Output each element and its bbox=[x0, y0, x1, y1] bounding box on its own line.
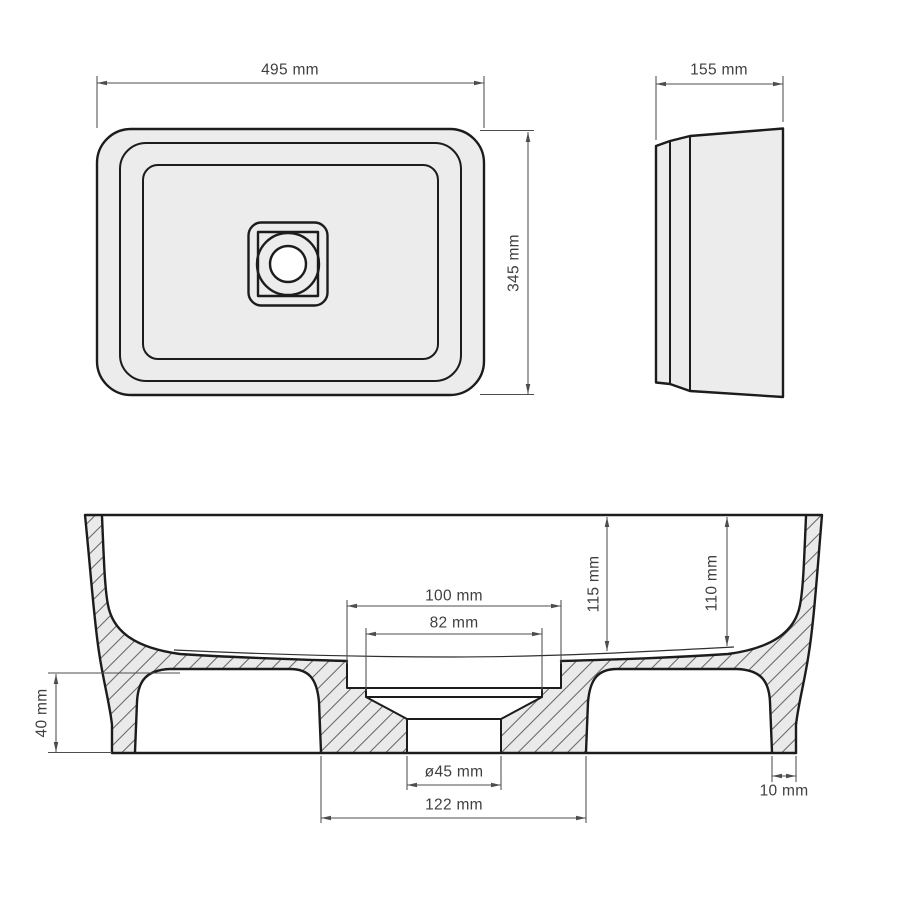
dim-label-top-depth: 345 mm bbox=[506, 234, 522, 292]
dim-label-base-height: 40 mm bbox=[34, 689, 50, 738]
dim-label-foot-thickness: 10 mm bbox=[760, 783, 809, 799]
drain-top-view bbox=[249, 223, 328, 306]
dim-label-base-width: 122 mm bbox=[425, 797, 483, 813]
dim-label-recess-outer: 100 mm bbox=[425, 588, 483, 604]
side-view bbox=[656, 129, 783, 398]
technical-drawing-page: 495 mm 345 mm 155 mm 115 mm 110 mm 100 m… bbox=[0, 0, 900, 900]
dim-label-drain-diameter: ø45 mm bbox=[425, 764, 484, 780]
dim-495 bbox=[97, 76, 484, 128]
top-view bbox=[97, 129, 484, 395]
dim-label-top-width: 495 mm bbox=[261, 62, 319, 78]
dim-label-depth-drain: 110 mm bbox=[704, 555, 720, 612]
dim-10 bbox=[772, 756, 796, 782]
dim-label-depth-inner: 115 mm bbox=[586, 556, 602, 613]
dim-label-side-width: 155 mm bbox=[690, 62, 748, 78]
dim-label-recess-inner: 82 mm bbox=[430, 615, 479, 631]
